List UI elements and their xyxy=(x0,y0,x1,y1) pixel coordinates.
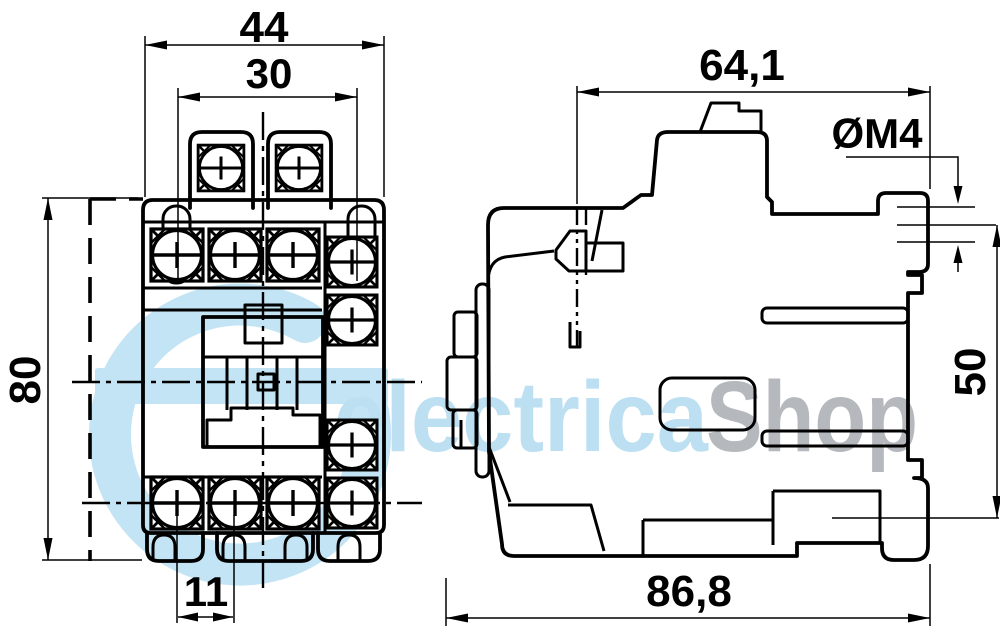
terminal-screw xyxy=(267,477,319,529)
watermark-text-left: electrica xyxy=(334,361,709,473)
dim-side-depth-overall: 86,8 xyxy=(646,567,732,616)
coil-screw xyxy=(198,145,244,191)
technical-drawing: electrica Shop xyxy=(0,0,1000,626)
dim-front-height: 80 xyxy=(1,356,50,405)
terminal-screw xyxy=(209,229,261,281)
aux-screw xyxy=(327,295,377,345)
terminal-screw xyxy=(209,477,261,529)
dim-side-depth-upper: 64,1 xyxy=(699,41,785,90)
aux-screw xyxy=(327,420,377,470)
aux-screw xyxy=(327,478,377,528)
coil-screw xyxy=(276,145,322,191)
dim-terminal-pitch: 11 xyxy=(184,568,228,615)
aux-screw xyxy=(327,237,377,287)
dim-mounting-screw: ØM4 xyxy=(831,110,923,157)
terminal-screw xyxy=(151,229,203,281)
dim-mounting-height: 50 xyxy=(946,348,995,397)
dim-front-width-inner: 30 xyxy=(246,50,293,97)
dim-front-width: 44 xyxy=(240,3,289,52)
terminal-screw xyxy=(267,229,319,281)
